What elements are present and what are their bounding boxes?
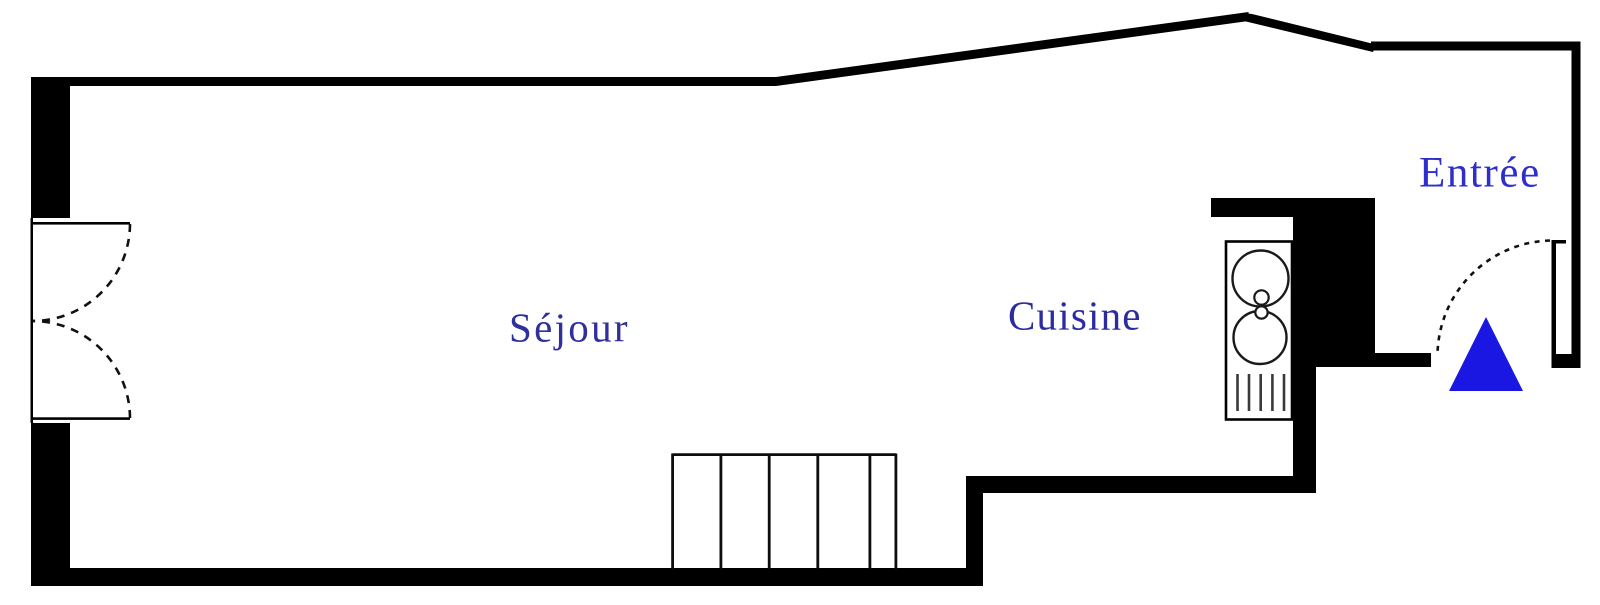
- svg-text:Cuisine: Cuisine: [1008, 293, 1142, 339]
- svg-text:Entrée: Entrée: [1419, 150, 1541, 197]
- svg-text:Séjour: Séjour: [509, 305, 630, 351]
